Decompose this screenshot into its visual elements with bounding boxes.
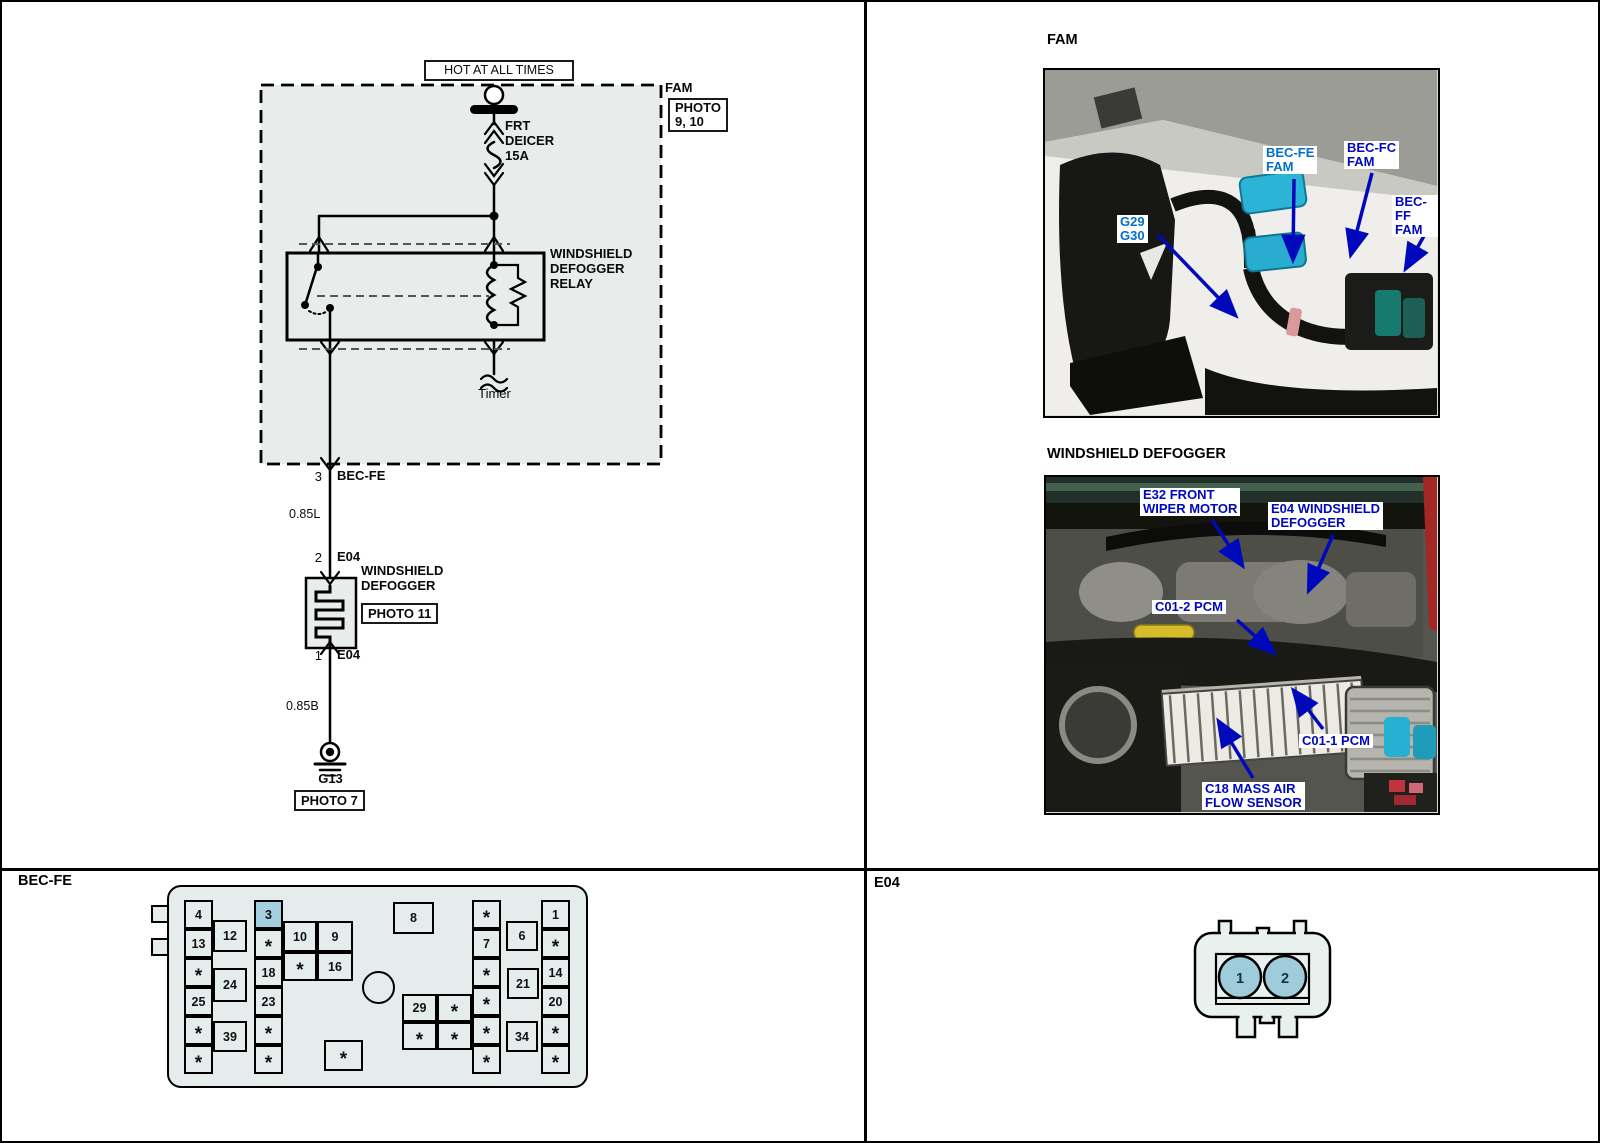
fuse-cell-star: *: [472, 900, 501, 929]
fuse-cell-star: *: [472, 1045, 501, 1074]
panel-divider-horizontal: [2, 868, 1600, 871]
fuse-cell-star: *: [184, 1045, 213, 1074]
callout-c18-mass-air-flow-sensor: C18 MASS AIR FLOW SENSOR: [1202, 782, 1305, 810]
fuse-cell-14: 14: [541, 958, 570, 987]
fam-photo: G29 G30 BEC-FE FAM BEC-FC FAM BEC-FF FAM: [1043, 68, 1440, 418]
fuse-cell-3-highlighted: 3: [254, 900, 283, 929]
fuse-cell-25: 25: [184, 987, 213, 1016]
wiring-diagram-canvas: [2, 2, 864, 868]
connector-bec-fe-label: BEC-FE: [337, 468, 385, 483]
fuse-label: FRT DEICER 15A: [505, 118, 554, 163]
pin-3-label: 3: [302, 469, 322, 484]
pin-1-label: 1: [302, 648, 322, 663]
fuse-cell-7: 7: [472, 929, 501, 958]
fuse-cell-8: 8: [393, 902, 434, 934]
fam-photo-callout-arrows: [1045, 70, 1437, 415]
callout-c01-1-pcm: C01-1 PCM: [1299, 734, 1373, 748]
fuse-cell-29: 29: [402, 994, 437, 1022]
fuse-cell-20: 20: [541, 987, 570, 1016]
connector-e04-top-label: E04: [337, 549, 360, 564]
defogger-photo-title: WINDSHIELD DEFOGGER: [1047, 446, 1226, 462]
callout-bec-fc-fam: BEC-FC FAM: [1344, 141, 1399, 169]
fam-photo-ref: PHOTO 9, 10: [668, 98, 728, 132]
fuse-cell-star: *: [541, 929, 570, 958]
power-node-icon: [485, 86, 503, 104]
e04-panel-title: E04: [874, 875, 900, 891]
fuse-cell-star: *: [472, 1016, 501, 1045]
fuse-cell-16: 16: [317, 952, 353, 981]
fuse-cell-34: 34: [506, 1021, 538, 1052]
fuse-cell-star: *: [254, 1016, 283, 1045]
connector-e04-bottom-label: E04: [337, 647, 360, 662]
fuse-cell-12: 12: [213, 920, 247, 952]
e04-connector-drawing: 1 2: [1187, 907, 1347, 1047]
fam-ref-label: FAM: [665, 80, 692, 95]
fuse-cell-1: 1: [541, 900, 570, 929]
callout-e04-windshield-defogger: E04 WINDSHIELD DEFOGGER: [1268, 502, 1383, 530]
defogger-label: WINDSHIELD DEFOGGER: [361, 563, 443, 593]
pin-2-label: 2: [302, 550, 322, 565]
fuse-cell-21: 21: [507, 968, 539, 999]
ground-photo-ref: PHOTO 7: [294, 790, 365, 811]
fuse-cell-star: *: [472, 958, 501, 987]
fuse-cell-24: 24: [213, 968, 247, 1002]
fuse-cell-6: 6: [506, 921, 538, 951]
fuse-cell-star: *: [402, 1022, 437, 1050]
fuse-cell-9: 9: [317, 921, 353, 952]
callout-bec-fe-fam: BEC-FE FAM: [1263, 146, 1317, 174]
fuse-cell-4: 4: [184, 900, 213, 929]
service-manual-page: HOT AT ALL TIMES FAM PHOTO 9, 10 FRT DEI…: [0, 0, 1600, 1143]
callout-e32-front-wiper-motor: E32 FRONT WIPER MOTOR: [1140, 488, 1240, 516]
e04-pin-2-number: 2: [1281, 971, 1289, 987]
wire-size-label-085l: 0.85L: [289, 507, 320, 522]
windshield-defogger-photo: E32 FRONT WIPER MOTOR E04 WINDSHIELD DEF…: [1044, 475, 1440, 815]
panel-divider-vertical: [864, 2, 867, 1143]
callout-bec-ff-fam: BEC-FF FAM: [1392, 195, 1438, 237]
callout-g29-g30: G29 G30: [1117, 215, 1148, 243]
fuse-cell-star: *: [541, 1016, 570, 1045]
wire-size-label-085b: 0.85B: [286, 699, 319, 714]
relay-label: WINDSHIELD DEFOGGER RELAY: [550, 246, 632, 291]
callout-c01-2-pcm: C01-2 PCM: [1152, 600, 1226, 614]
fuse-cell-star: *: [184, 1016, 213, 1045]
fuse-cell-star: *: [324, 1040, 363, 1071]
fusebox-relay-socket-circle: [362, 971, 395, 1004]
fuse-cell-star: *: [437, 994, 472, 1022]
fam-photo-title: FAM: [1047, 32, 1078, 48]
fuse-cell-18: 18: [254, 958, 283, 987]
defogger-photo-ref: PHOTO 11: [361, 603, 438, 624]
fuse-cell-star: *: [283, 952, 317, 981]
fuse-cell-39: 39: [213, 1021, 247, 1052]
ground-g13-label: G13: [308, 771, 353, 786]
fuse-cell-star: *: [254, 929, 283, 958]
fuse-cell-star: *: [541, 1045, 570, 1074]
fuse-cell-star: *: [254, 1045, 283, 1074]
fuse-cell-10: 10: [283, 921, 317, 952]
bec-fe-panel-title: BEC-FE: [18, 873, 72, 889]
fuse-cell-star: *: [472, 987, 501, 1016]
fuse-cell-star: *: [437, 1022, 472, 1050]
e04-pin-1-number: 1: [1236, 971, 1244, 987]
timer-label: Timer: [472, 386, 517, 401]
e04-lock-bar: [1216, 998, 1309, 1004]
fuse-cell-star: *: [184, 958, 213, 987]
hot-at-all-times-label: HOT AT ALL TIMES: [424, 60, 574, 81]
fuse-cell-13: 13: [184, 929, 213, 958]
fuse-cell-23: 23: [254, 987, 283, 1016]
